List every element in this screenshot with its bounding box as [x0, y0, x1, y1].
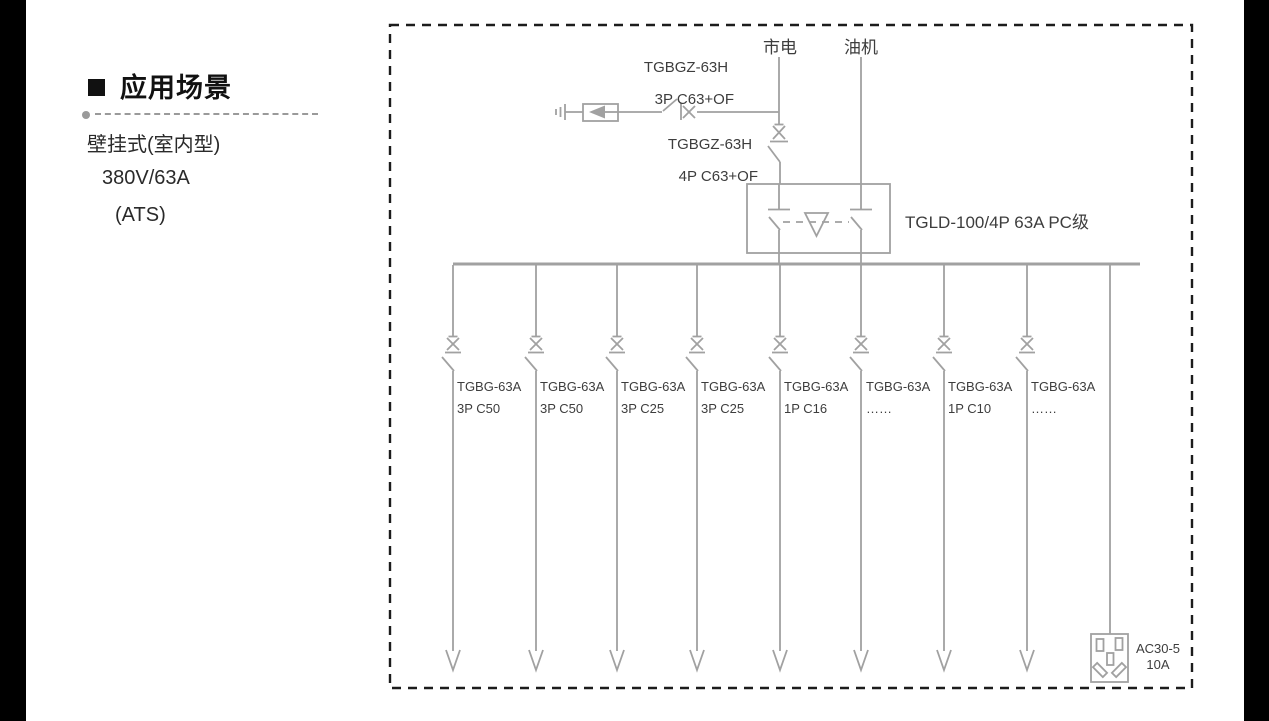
spd-arrow-icon: [589, 106, 605, 119]
branch-model: TGBG-63A: [866, 379, 930, 394]
branch-label: TGBG-63A3P C50: [540, 376, 618, 419]
spd-breaker-label: TGBGZ-63H 3P C63+OF: [624, 60, 748, 108]
socket-rating-label: 10A: [1128, 657, 1188, 672]
branch-line: [606, 265, 625, 670]
page: 应用场景 壁挂式(室内型) 380V/63A (ATS): [0, 0, 1269, 721]
spd-breaker-spec: 3P C63+OF: [655, 91, 734, 108]
spd-breaker-model: TGBGZ-63H: [644, 59, 728, 76]
branch-label: TGBG-63A1P C16: [784, 376, 862, 419]
ats-triangle-icon: [805, 213, 828, 236]
branch-line: [933, 265, 952, 670]
socket-branch: [1091, 265, 1128, 682]
branch-line: [769, 265, 788, 670]
branch-line: [686, 265, 705, 670]
branch-spec: 3P C25: [621, 398, 699, 419]
branch-spec: ……: [866, 398, 944, 419]
branch-model: TGBG-63A: [621, 379, 685, 394]
branch-label: TGBG-63A3P C50: [457, 376, 535, 419]
ats-label: TGLD-100/4P 63A PC级: [905, 208, 1089, 233]
ats-switch-icon: [747, 184, 890, 265]
branch-label: TGBG-63A……: [1031, 376, 1109, 419]
branch-label: TGBG-63A3P C25: [701, 376, 779, 419]
branch-spec: 1P C16: [784, 398, 862, 419]
single-line-diagram: [0, 0, 1269, 721]
main-breaker-model: TGBGZ-63H: [668, 136, 752, 153]
branch-spec: 3P C25: [701, 398, 779, 419]
branch-spec: 1P C10: [948, 398, 1026, 419]
branch-line: [525, 265, 544, 670]
branch-model: TGBG-63A: [784, 379, 848, 394]
branch-model: TGBG-63A: [1031, 379, 1095, 394]
branch-spec: 3P C50: [540, 398, 618, 419]
branch-spec: ……: [1031, 398, 1109, 419]
socket-icon: [1091, 634, 1128, 682]
main-breaker-spec: 4P C63+OF: [679, 168, 758, 185]
branch-line: [1016, 265, 1035, 670]
generator-source-label: 油机: [831, 33, 891, 58]
branch-model: TGBG-63A: [948, 379, 1012, 394]
branch-spec: 3P C50: [457, 398, 535, 419]
mains-source-label: 市电: [750, 33, 810, 58]
branch-label: TGBG-63A1P C10: [948, 376, 1026, 419]
diagram-border: [390, 25, 1192, 688]
branch-label: TGBG-63A……: [866, 376, 944, 419]
main-breaker-label: TGBGZ-63H 4P C63+OF: [648, 137, 772, 185]
socket-model-label: AC30-5: [1128, 641, 1188, 656]
branch-model: TGBG-63A: [457, 379, 521, 394]
branch-line: [442, 265, 461, 670]
branch-model: TGBG-63A: [701, 379, 765, 394]
branch-label: TGBG-63A3P C25: [621, 376, 699, 419]
branch-circuits: [442, 265, 1035, 670]
branch-model: TGBG-63A: [540, 379, 604, 394]
branch-line: [850, 265, 869, 670]
